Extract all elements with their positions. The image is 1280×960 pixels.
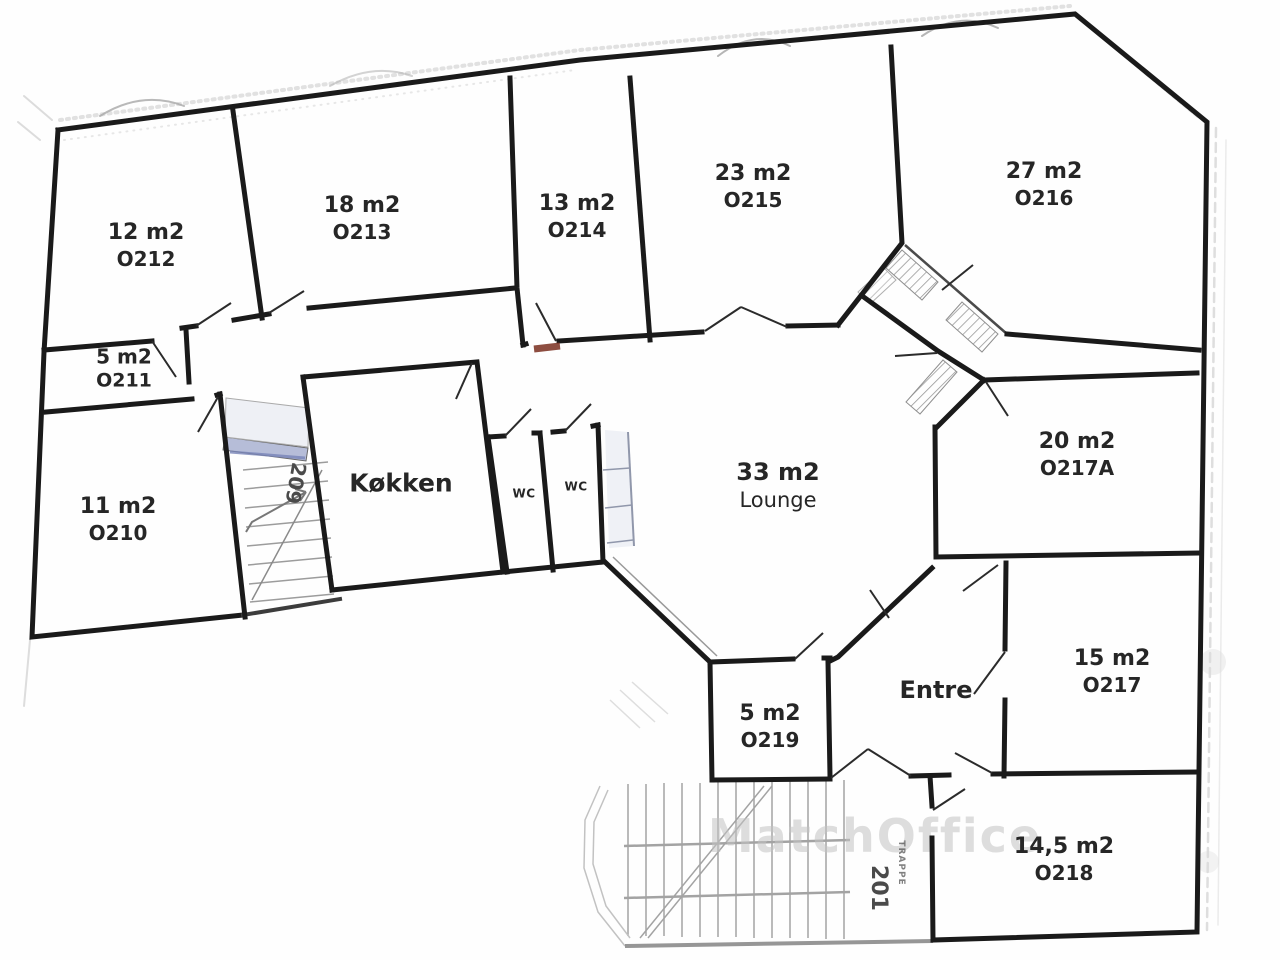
room-label-wc-right: WC: [564, 480, 587, 495]
room-o211-area: 5 m2: [96, 345, 152, 370]
room-o218-area: 14,5 m2: [1014, 833, 1114, 861]
room-wc-left-name: WC: [512, 487, 535, 502]
room-label-o211: 5 m2 O211: [96, 345, 152, 394]
room-entre-name: Entre: [899, 675, 972, 705]
room-o212-code: O212: [108, 246, 185, 271]
room-lounge-name: Lounge: [736, 487, 819, 513]
room-o213-code: O213: [324, 219, 401, 244]
room-label-o214: 13 m2 O214: [539, 190, 616, 243]
room-o214-code: O214: [539, 217, 616, 242]
room-o219-area: 5 m2: [739, 700, 800, 728]
room-label-entre: Entre: [899, 675, 972, 705]
room-o216-area: 27 m2: [1006, 158, 1083, 186]
room-label-o219: 5 m2 O219: [739, 700, 800, 753]
room-o214-area: 13 m2: [539, 190, 616, 218]
door-leaves: [152, 265, 1008, 810]
room-label-lounge: 33 m2 Lounge: [736, 457, 819, 513]
room-o215-code: O215: [715, 187, 792, 212]
room-o217-code: O217: [1074, 672, 1151, 697]
room-o213-area: 18 m2: [324, 192, 401, 220]
room-o210-code: O210: [80, 520, 157, 545]
room-o218-code: O218: [1014, 860, 1114, 885]
room-o216-code: O216: [1006, 185, 1083, 210]
room-label-o216: 27 m2 O216: [1006, 158, 1083, 211]
room-label-o213: 18 m2 O213: [324, 192, 401, 245]
room-label-o212: 12 m2 O212: [108, 219, 185, 272]
stairwell-201-sublabel: TRAPPE: [896, 840, 906, 885]
red-scan-mark: [534, 346, 560, 349]
room-o217-area: 15 m2: [1074, 645, 1151, 673]
room-kitchen-name: Køkken: [349, 467, 452, 498]
room-label-o218: 14,5 m2 O218: [1014, 833, 1114, 886]
room-label-o215: 23 m2 O215: [715, 160, 792, 213]
room-o215-area: 23 m2: [715, 160, 792, 188]
room-label-o210: 11 m2 O210: [80, 493, 157, 546]
floorplan-image: MatchOffice: [0, 0, 1280, 960]
room-o210-area: 11 m2: [80, 493, 157, 521]
room-o217a-area: 20 m2: [1039, 428, 1116, 456]
room-label-wc-left: WC: [512, 487, 535, 502]
room-o212-area: 12 m2: [108, 219, 185, 247]
stairwell-201-label: 201: [866, 865, 891, 911]
room-o219-code: O219: [739, 727, 800, 752]
room-wc-right-name: WC: [564, 480, 587, 495]
watermark-text: MatchOffice: [708, 809, 1042, 863]
room-label-kitchen: Køkken: [349, 467, 452, 498]
room-label-o217a: 20 m2 O217A: [1039, 428, 1116, 481]
room-o217a-code: O217A: [1039, 455, 1116, 480]
room-lounge-area: 33 m2: [736, 457, 819, 487]
room-label-o217: 15 m2 O217: [1074, 645, 1151, 698]
room-o211-code: O211: [96, 370, 152, 394]
